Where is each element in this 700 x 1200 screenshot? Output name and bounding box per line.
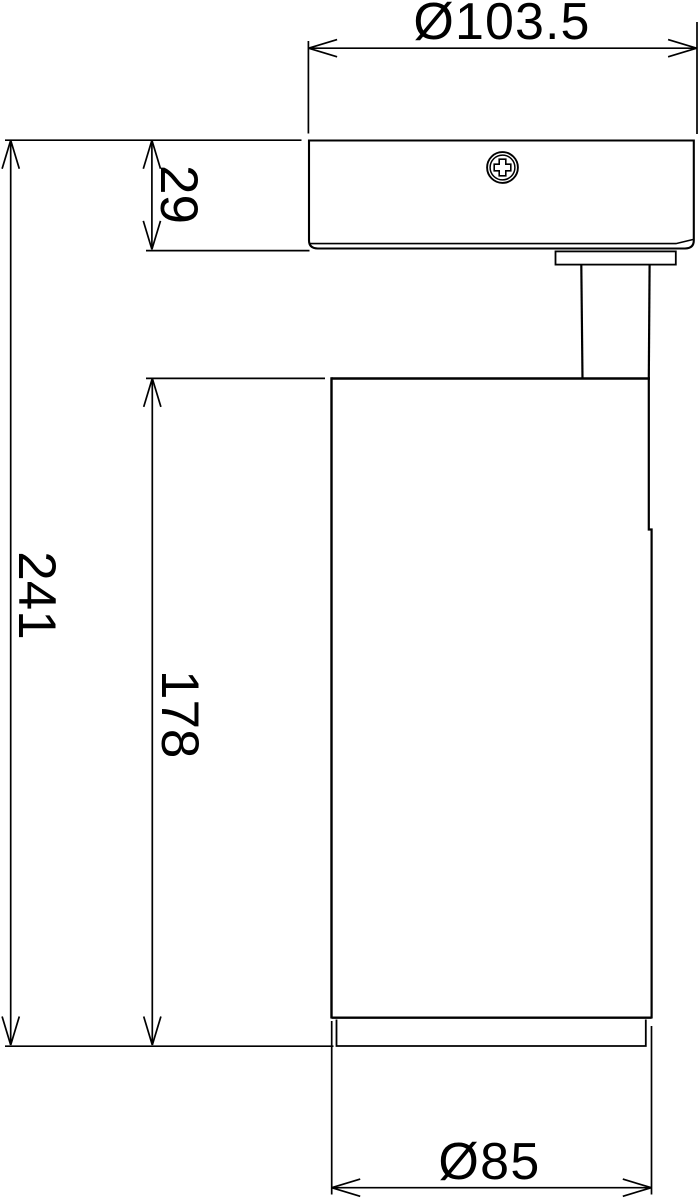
svg-text:178: 178 <box>150 670 209 758</box>
svg-text:29: 29 <box>149 165 208 224</box>
svg-text:Ø103.5: Ø103.5 <box>413 0 590 51</box>
svg-text:241: 241 <box>7 551 66 639</box>
svg-text:Ø85: Ø85 <box>438 1133 540 1191</box>
